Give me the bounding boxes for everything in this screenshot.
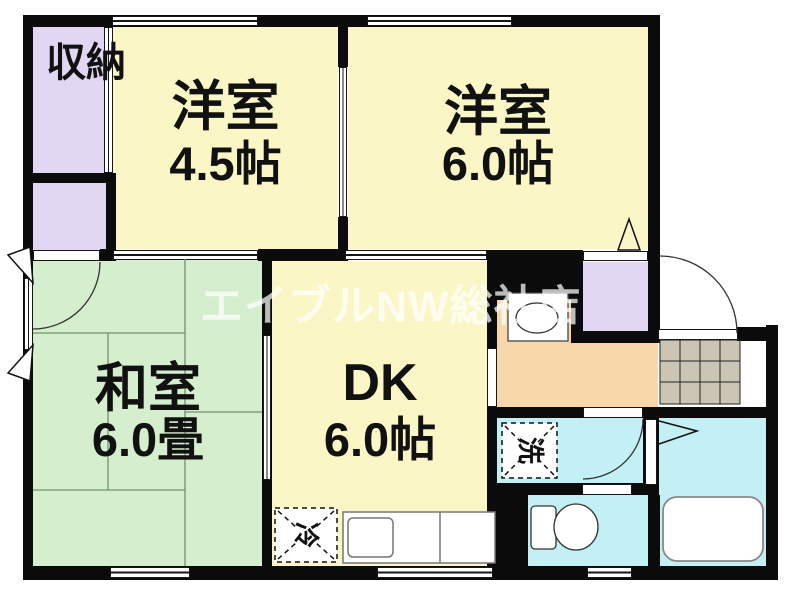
window-dk-bottom xyxy=(377,567,493,578)
wall-right-lower xyxy=(766,325,778,580)
entrance-threshold xyxy=(658,329,738,340)
slider-western60-dk xyxy=(345,250,487,260)
bath-folding-door xyxy=(645,419,657,485)
window-toilet-bottom xyxy=(587,567,632,578)
slider-between-western-rooms xyxy=(339,67,347,217)
bathroom-floor xyxy=(659,418,766,567)
entry-closet xyxy=(583,262,648,331)
window-japanese-bottom xyxy=(110,567,190,578)
agency-watermark: エイブルNW総社店 xyxy=(200,272,582,334)
label-refrigerator: 冷 xyxy=(279,504,333,566)
toilet-room-floor xyxy=(528,495,648,567)
label-dk-size: 6.0帖 xyxy=(272,416,488,463)
label-dk-name: DK xyxy=(272,357,488,409)
wall-right-upper xyxy=(648,15,660,340)
label-japanese-name: 和室 xyxy=(33,362,263,415)
doorway-japanese-closet xyxy=(33,250,100,261)
window-western45-top xyxy=(112,16,258,26)
label-western60-name: 洋室 xyxy=(348,85,648,139)
label-western45-name: 洋室 xyxy=(113,80,338,134)
window-japanese-left xyxy=(24,278,33,350)
wall-entry-top xyxy=(737,327,778,341)
genkan-tiles xyxy=(660,340,740,404)
door-arc-entrance xyxy=(660,256,737,333)
label-western60-size: 6.0帖 xyxy=(348,140,648,187)
label-storage-closet: 収納 xyxy=(46,40,92,86)
label-japanese-size: 6.0畳 xyxy=(33,416,263,463)
opening-dk-kitchen xyxy=(487,348,497,407)
wall-entry-closet-bottom xyxy=(571,331,660,343)
slider-japanese-dk xyxy=(263,335,271,480)
wall-dk-right-b xyxy=(487,407,497,567)
doorway-entry-closet xyxy=(583,251,648,261)
wall-band-a xyxy=(100,249,113,261)
window-western60-top xyxy=(367,16,512,26)
wall-closet-bottom xyxy=(33,173,116,183)
slider-western45-japanese xyxy=(113,250,258,260)
room-storage-closet-lower xyxy=(33,183,106,250)
floor-plan: 収納 洋室 4.5帖 洋室 6.0帖 和室 6.0畳 DK 6.0帖 冷 洗 エ… xyxy=(0,0,800,593)
label-washing-machine: 洗 xyxy=(502,423,557,478)
wall-room-divider-top xyxy=(338,15,348,67)
wall-toilet-right xyxy=(648,495,660,567)
label-western45-size: 4.5帖 xyxy=(113,140,338,187)
doorway-washroom-toilet xyxy=(582,484,632,495)
doorway-hall-washroom xyxy=(583,407,643,418)
wall-toilet-left xyxy=(497,483,528,567)
